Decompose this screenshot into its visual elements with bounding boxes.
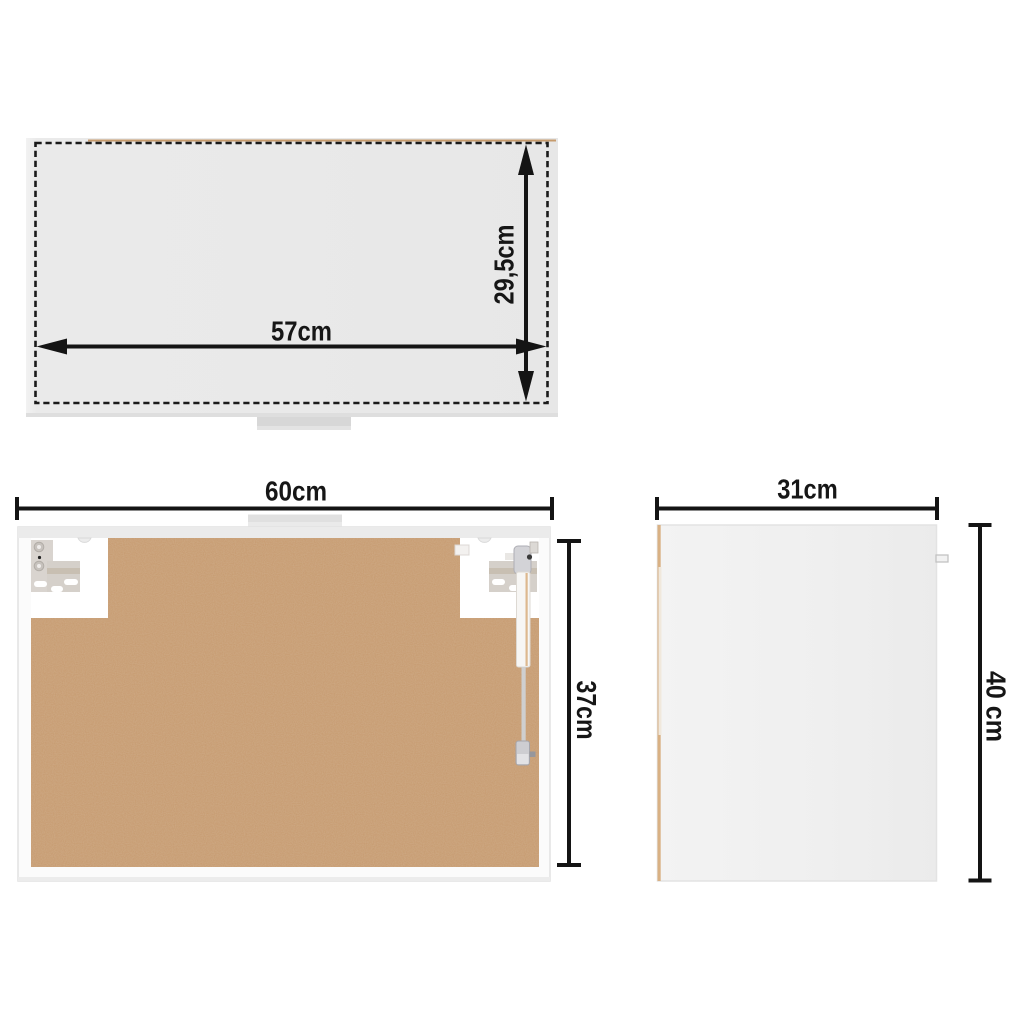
svg-text:60cm: 60cm bbox=[265, 476, 327, 507]
svg-text:40 cm: 40 cm bbox=[981, 671, 1012, 742]
svg-text:57cm: 57cm bbox=[271, 316, 332, 347]
svg-text:31cm: 31cm bbox=[777, 474, 838, 505]
svg-text:29,5cm: 29,5cm bbox=[489, 225, 520, 305]
svg-text:37cm: 37cm bbox=[571, 681, 602, 740]
